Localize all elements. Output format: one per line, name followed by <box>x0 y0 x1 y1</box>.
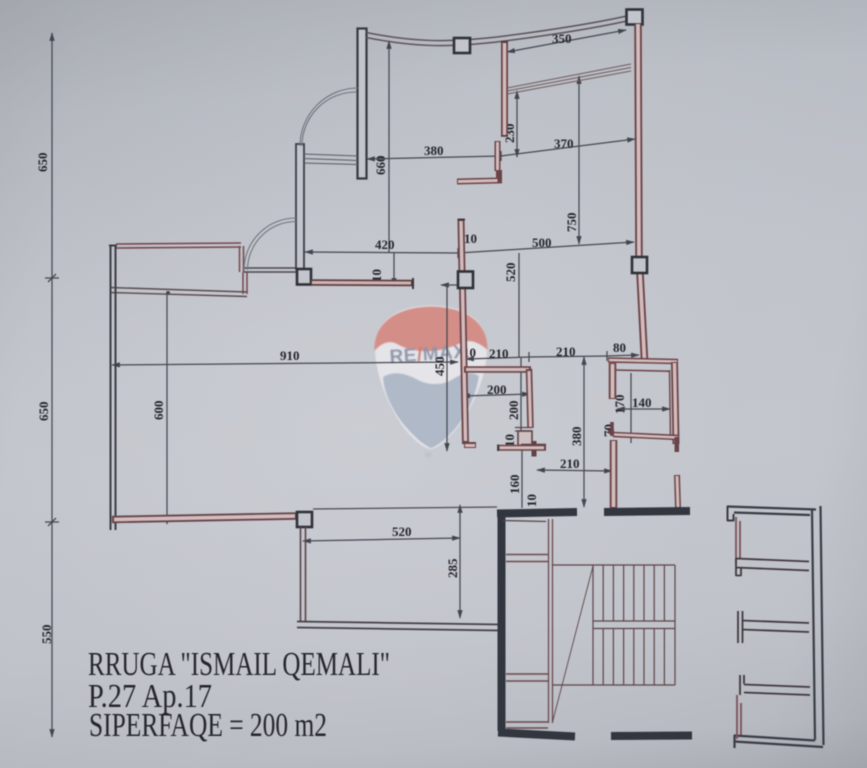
svg-text:10: 10 <box>524 494 539 507</box>
svg-text:210: 210 <box>489 346 509 361</box>
svg-text:w: w <box>424 449 432 459</box>
svg-text:210: 210 <box>560 456 580 471</box>
svg-text:200: 200 <box>506 401 521 421</box>
svg-text:520: 520 <box>392 524 412 539</box>
svg-text:285: 285 <box>445 558 460 578</box>
svg-text:520: 520 <box>503 263 518 283</box>
svg-text:160: 160 <box>507 475 522 495</box>
svg-text:10: 10 <box>464 231 477 246</box>
svg-text:140: 140 <box>632 395 652 410</box>
svg-text:910: 910 <box>280 348 300 363</box>
svg-text:80: 80 <box>613 340 626 355</box>
svg-text:750: 750 <box>564 213 579 233</box>
svg-text:650: 650 <box>36 402 51 422</box>
svg-text:210: 210 <box>556 344 576 359</box>
svg-text:SIPERFAQE = 200 m2: SIPERFAQE = 200 m2 <box>89 707 327 744</box>
svg-text:380: 380 <box>424 143 444 158</box>
svg-text:450: 450 <box>432 357 447 377</box>
svg-text:370: 370 <box>554 136 574 151</box>
svg-text:380: 380 <box>569 427 584 447</box>
svg-text:600: 600 <box>151 401 166 421</box>
svg-text:200: 200 <box>487 382 507 397</box>
svg-text:420: 420 <box>375 237 395 252</box>
svg-text:550: 550 <box>39 625 54 645</box>
svg-text:500: 500 <box>532 235 552 250</box>
svg-text:650: 650 <box>35 153 50 173</box>
